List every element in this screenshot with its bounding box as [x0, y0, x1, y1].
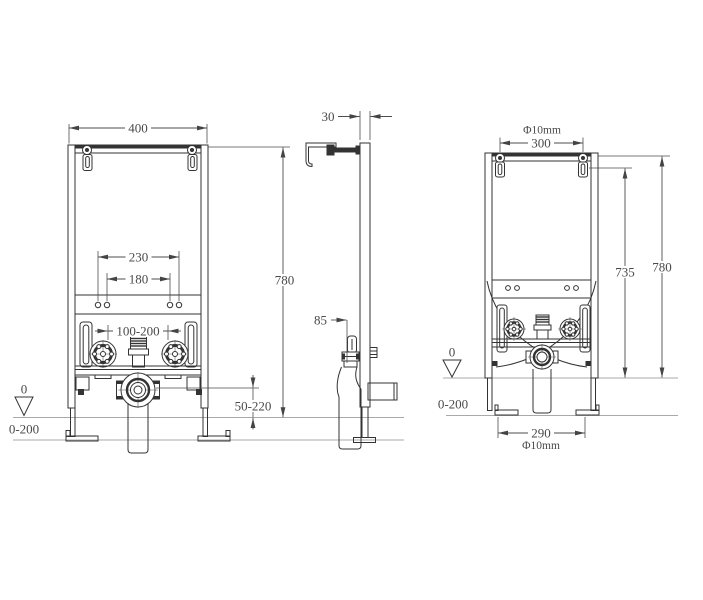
side-view [306, 143, 397, 449]
technical-drawing-page: 400 780 230 180 100-200 50-220 0 [0, 0, 703, 600]
central-fitting-front [129, 336, 149, 367]
dim-rear-top-hole-span: 300 [531, 136, 551, 151]
floor-lines-right [443, 378, 678, 416]
dim-rear-frame-height: 780 [652, 260, 672, 275]
front-view [66, 145, 230, 453]
drain-pipe-front [128, 403, 148, 453]
waste-outlet-pipe [368, 383, 397, 400]
dim-front-width: 400 [128, 121, 148, 136]
dim-front-hole-span-outer: 230 [129, 250, 149, 265]
dim-front-hole-span-inner: 180 [129, 272, 149, 287]
rear-dimensions: Φ10mm 300 735 780 0 0-200 290 Φ10mm [438, 125, 675, 453]
front-datum-zero-label: 0 [21, 382, 28, 397]
dim-front-fixing-span: 100-200 [116, 324, 159, 339]
fixing-flange-left [89, 340, 117, 368]
rear-datum-triangle [443, 360, 461, 377]
dim-front-drain-height-range: 50-220 [235, 399, 272, 414]
dim-front-height: 780 [275, 273, 295, 288]
drain-pipe-rear [533, 369, 551, 413]
front-floor-range-label: 0-200 [9, 422, 39, 437]
drain-connector-rear [526, 344, 558, 370]
front-datum-triangle [15, 397, 33, 416]
rear-datum-zero-label: 0 [449, 345, 456, 360]
installation-frame-drawing: 400 780 230 180 100-200 50-220 0 [0, 0, 703, 600]
drain-connector-front [117, 372, 160, 408]
dim-side-outlet-offset: 85 [314, 313, 327, 328]
rear-floor-range-label: 0-200 [438, 397, 468, 412]
dim-rear-base-hole-diameter: Φ10mm [522, 440, 560, 452]
dim-rear-bracket-height: 735 [615, 265, 635, 280]
rear-view [485, 153, 599, 415]
dim-side-profile-depth: 30 [322, 109, 335, 124]
dim-rear-base-hole-span: 290 [531, 426, 551, 441]
